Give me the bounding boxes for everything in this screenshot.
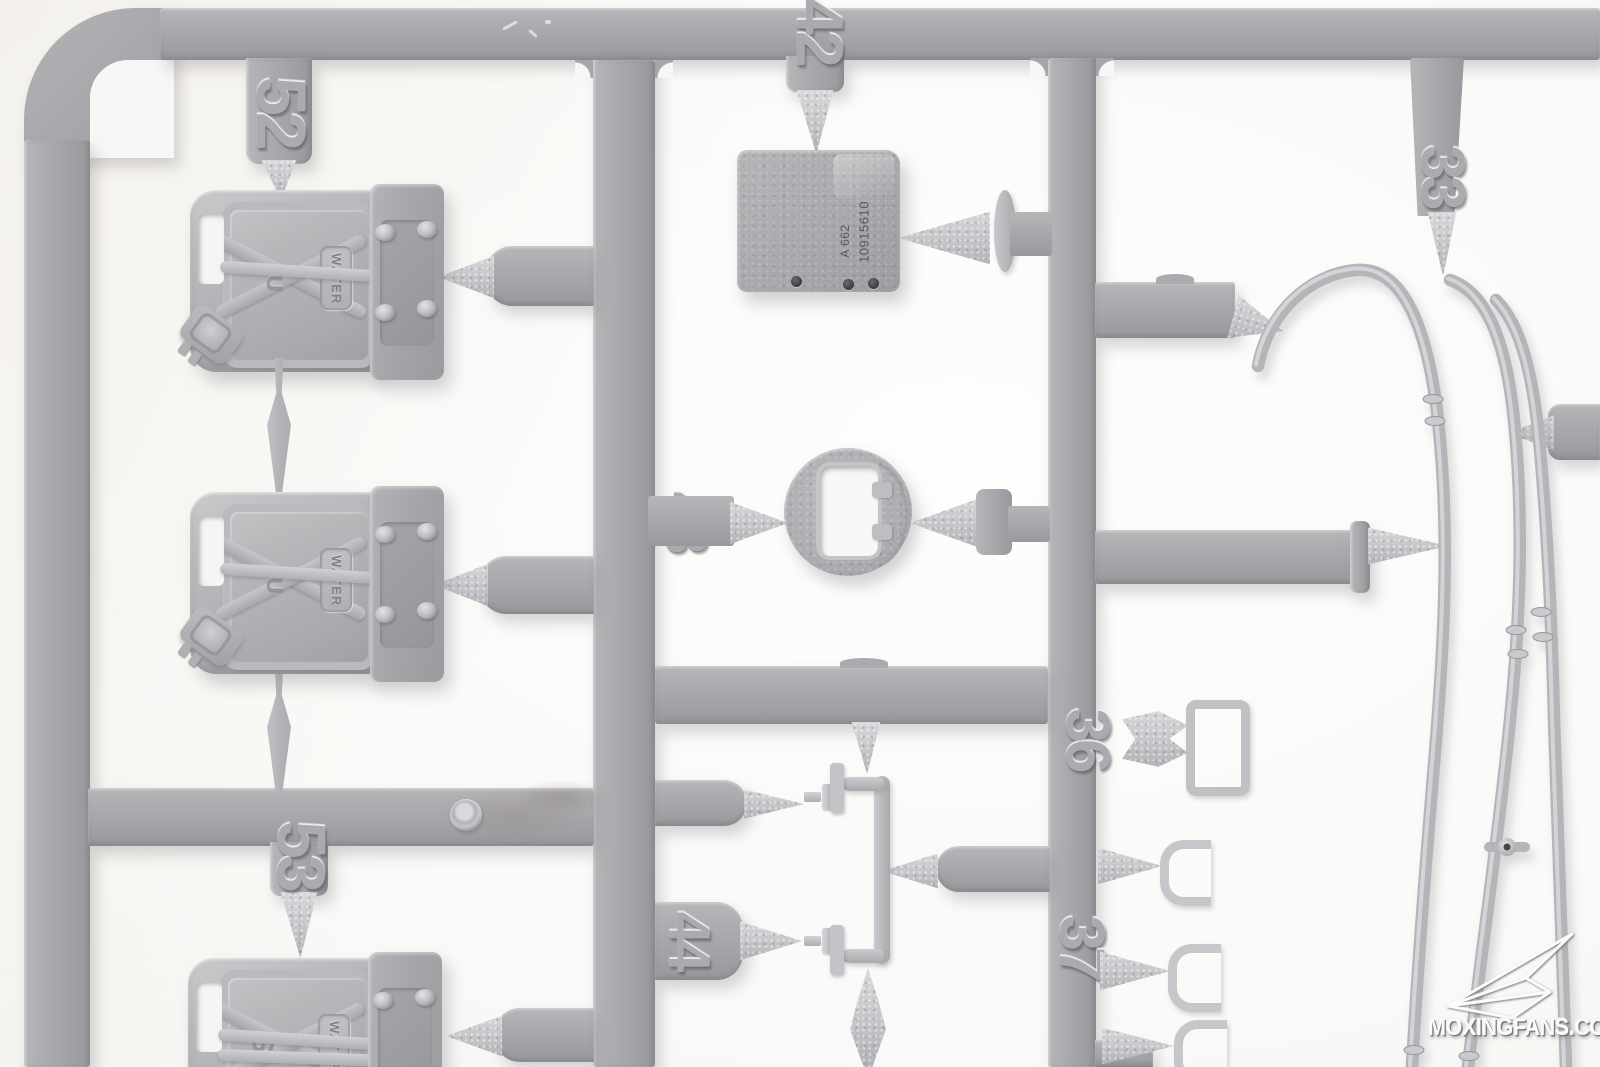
paper-plane-icon	[1442, 930, 1576, 1020]
bracket-rivet	[415, 989, 435, 1006]
runner-fillet	[1096, 58, 1114, 76]
part-42-stowage-box	[737, 150, 900, 292]
runner-fillet	[575, 60, 593, 78]
jerry-can-1: U WATER	[190, 186, 448, 384]
disc-opening	[820, 466, 878, 556]
box-bolt	[843, 279, 854, 290]
box-bolt	[868, 278, 879, 289]
bracket-rivet	[417, 602, 437, 619]
can-handle-opening	[196, 982, 222, 1052]
part-grab-handle-post	[874, 776, 890, 964]
gate-cone-handle-top	[744, 788, 804, 820]
gate-cone-handle	[882, 852, 938, 890]
scuff-mark	[545, 20, 551, 24]
runner-stub-can2	[480, 556, 594, 614]
can-mount-bracket	[370, 486, 444, 682]
runner-stub-handle-top	[655, 780, 747, 826]
part-fork-clamp	[1174, 1020, 1227, 1067]
disc-hinge	[872, 524, 892, 540]
part-fork-clamp	[1160, 840, 1211, 906]
bracket-rivet	[417, 221, 437, 238]
sprue-rail-top	[160, 8, 1600, 60]
part-number-52: 52	[241, 77, 321, 147]
part-number-36: 36	[1052, 709, 1123, 770]
gate-cone-43-left	[730, 500, 788, 546]
gate-cone-43-right	[910, 496, 980, 550]
runner-stub-can3	[494, 1008, 594, 1062]
gate-cone-fork	[1098, 846, 1162, 886]
can-handle-opening	[198, 214, 224, 284]
bracket-rivet	[373, 992, 393, 1009]
watermark-text: MOXINGFANS.COM	[1428, 1014, 1600, 1042]
jerry-can-3: S WATER	[188, 954, 446, 1067]
runner-fillet	[1030, 58, 1048, 76]
sprue-runner-center	[593, 60, 655, 1067]
runner-branch-upper-right	[1095, 282, 1235, 338]
box-bolt	[791, 276, 802, 287]
part-number-33: 33	[1407, 146, 1478, 207]
bracket-rivet	[375, 606, 395, 623]
runner-stub-43	[648, 496, 734, 546]
gate-cone-53	[276, 892, 322, 958]
sink-mark	[515, 780, 610, 814]
gate-cone-42	[792, 90, 838, 154]
bracket-rivet	[417, 300, 437, 317]
sprue-rail-left	[24, 140, 90, 1067]
can-handle-opening	[198, 516, 224, 586]
gate-plate-43	[976, 489, 1012, 555]
box-sheen	[833, 154, 895, 198]
runner-bump	[1156, 274, 1194, 284]
runner-cross-center	[655, 666, 1048, 724]
gate-cone-36	[1122, 710, 1188, 768]
runner-stub-can1	[486, 246, 594, 306]
part-number-42: 42	[782, 0, 858, 64]
jerry-can-2: U WATER	[190, 488, 448, 686]
part-number-53: 53	[262, 821, 340, 889]
gate-bar-43	[1008, 506, 1050, 542]
box-marking-number: 10915610	[857, 201, 872, 263]
disc-hinge	[872, 482, 892, 498]
gate-cone-fork	[1100, 950, 1170, 992]
ejector-pin-mark	[450, 799, 482, 831]
gate-cone-handle-upper	[848, 722, 884, 774]
runner-fillet	[655, 60, 673, 78]
handle-mount-plate	[830, 763, 844, 813]
gate-bar-42	[1010, 212, 1052, 256]
gate-cone-44	[740, 920, 802, 962]
bracket-rivet	[375, 526, 395, 543]
runner-bump	[840, 658, 888, 668]
part-number-44: 44	[656, 912, 723, 969]
part-37-fork-clamp	[1168, 944, 1221, 1012]
box-marking-code: A 662	[838, 224, 852, 257]
sprue-photo: 52 42 33 43 36 53 44 37 U WATER	[0, 0, 1600, 1067]
can-mount-bracket	[368, 952, 442, 1067]
can-stencil-letter: U	[261, 577, 287, 593]
handle-mount-plate	[830, 925, 844, 975]
gate-bicone-bottom	[850, 968, 886, 1067]
part-grab-handle-arm	[842, 949, 884, 963]
part-grab-handle-arm	[842, 777, 884, 791]
can-stencil-letter: U	[261, 275, 287, 291]
bracket-rivet	[375, 304, 395, 321]
gate-cone-can3	[446, 1014, 502, 1058]
runner-stub-handle	[936, 846, 1050, 892]
bracket-rivet	[417, 523, 437, 540]
can-mount-bracket	[370, 184, 444, 380]
bracket-rivet	[375, 224, 395, 241]
gate-cone-42-right	[898, 208, 990, 268]
sprue-corner-top-left	[24, 8, 174, 158]
